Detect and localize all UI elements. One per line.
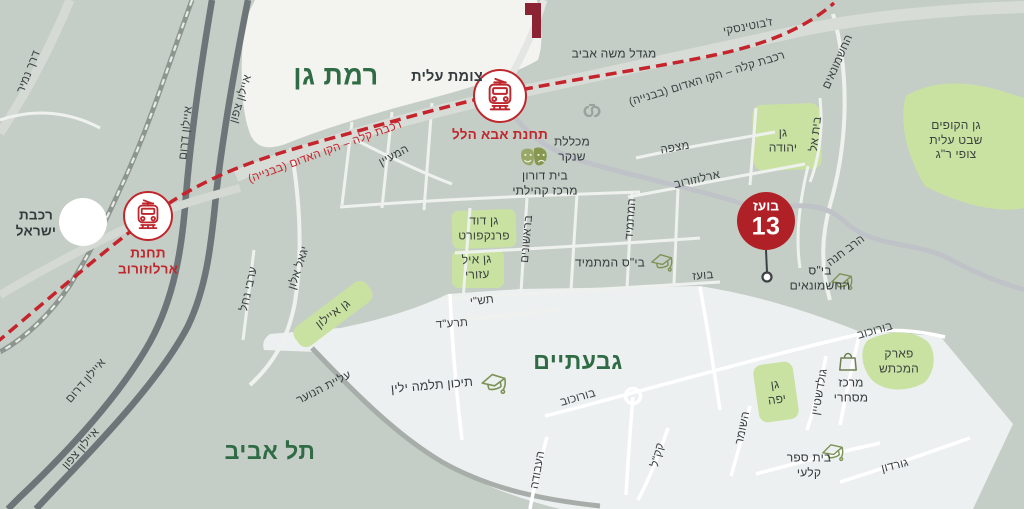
map-geometry [0, 0, 1024, 509]
park-gan-hakofim [903, 84, 1024, 210]
park-gan-eyal-azuri [452, 250, 504, 288]
graduation-cap-icon-hashmonaim [830, 271, 854, 294]
college-emblem-icon [585, 105, 600, 116]
graduation-cap-icon-hamatmid [651, 253, 674, 275]
station-aba-hillel-icon [474, 70, 526, 122]
park-gan-yehuda [752, 103, 822, 171]
theater-masks-icon [521, 148, 547, 166]
givatayim-urban-region [263, 286, 1013, 509]
park-hamachtesh-shape [862, 333, 933, 390]
boaz-13-marker [737, 192, 795, 282]
railway-line [0, 0, 192, 352]
israel-rail-station-circle [59, 198, 107, 246]
station-arlozorov-icon [124, 192, 172, 240]
ayalon-highway [8, 0, 248, 509]
park-gan-david-frankfurt [451, 209, 516, 249]
map-canvas: דרך נמיראיילון דרוםאיילון צפוןרכבת קלה –… [0, 0, 1024, 509]
park-gan-yafe [752, 360, 800, 423]
